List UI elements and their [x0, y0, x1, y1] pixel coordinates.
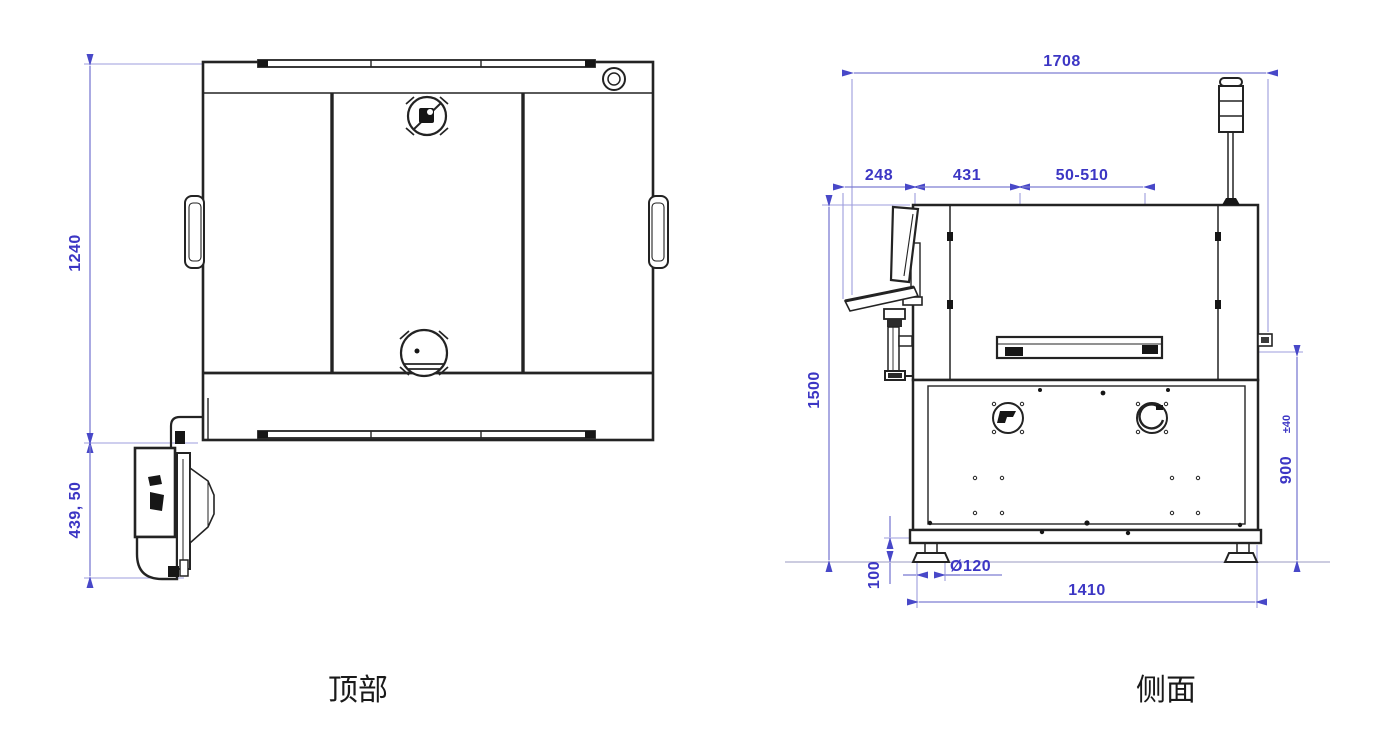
lower-cabinet: [913, 380, 1258, 530]
dim-foot-clearance: 100: [866, 561, 883, 589]
base-plate: [910, 530, 1261, 543]
right-handle: [649, 196, 668, 268]
dim-base-width: 1410: [1068, 582, 1106, 599]
machine-dimension-drawing: 1240 439, 50: [0, 0, 1387, 756]
side-view-monitor-assembly: [845, 207, 922, 380]
top-view: 1240 439, 50: [67, 60, 668, 707]
dim-rail-height-tolerance: ±40: [1281, 415, 1293, 433]
side-view-caption: 侧面: [1136, 674, 1196, 707]
side-view: 1708 248 431 50-510 1500 900 ±40 100 Ø12…: [785, 53, 1330, 707]
left-handle: [185, 196, 204, 268]
leveling-foot-left: [913, 543, 949, 562]
lower-fan-icon: [400, 330, 448, 376]
monitor-box: [135, 448, 175, 537]
top-vent-slot: [258, 60, 595, 67]
dim-foot-diameter: Ø120: [950, 558, 991, 575]
dim-overall-height: 1500: [806, 371, 823, 409]
dim-rail-travel: 50-510: [1056, 167, 1109, 184]
dim-top-body-height: 1240: [67, 234, 84, 272]
bottom-vent-slot: [258, 431, 595, 438]
dim-monitor-overhang: 248: [865, 167, 893, 184]
dim-overall-width: 1708: [1043, 53, 1081, 70]
leveling-foot-right: [1225, 543, 1257, 562]
drawing-canvas: 1240 439, 50: [0, 0, 1387, 756]
dim-top-monitor-offset: 439, 50: [67, 482, 84, 539]
dim-rail-height: 900: [1278, 456, 1295, 484]
side-outlet: [1258, 334, 1272, 346]
top-view-machine-body: [185, 60, 668, 440]
side-view-machine-body: [845, 78, 1272, 562]
conveyor-rail: [997, 337, 1162, 358]
signal-tower-icon: [1219, 78, 1243, 205]
top-view-caption: 顶部: [328, 674, 388, 707]
dim-front-to-rail: 431: [953, 167, 981, 184]
